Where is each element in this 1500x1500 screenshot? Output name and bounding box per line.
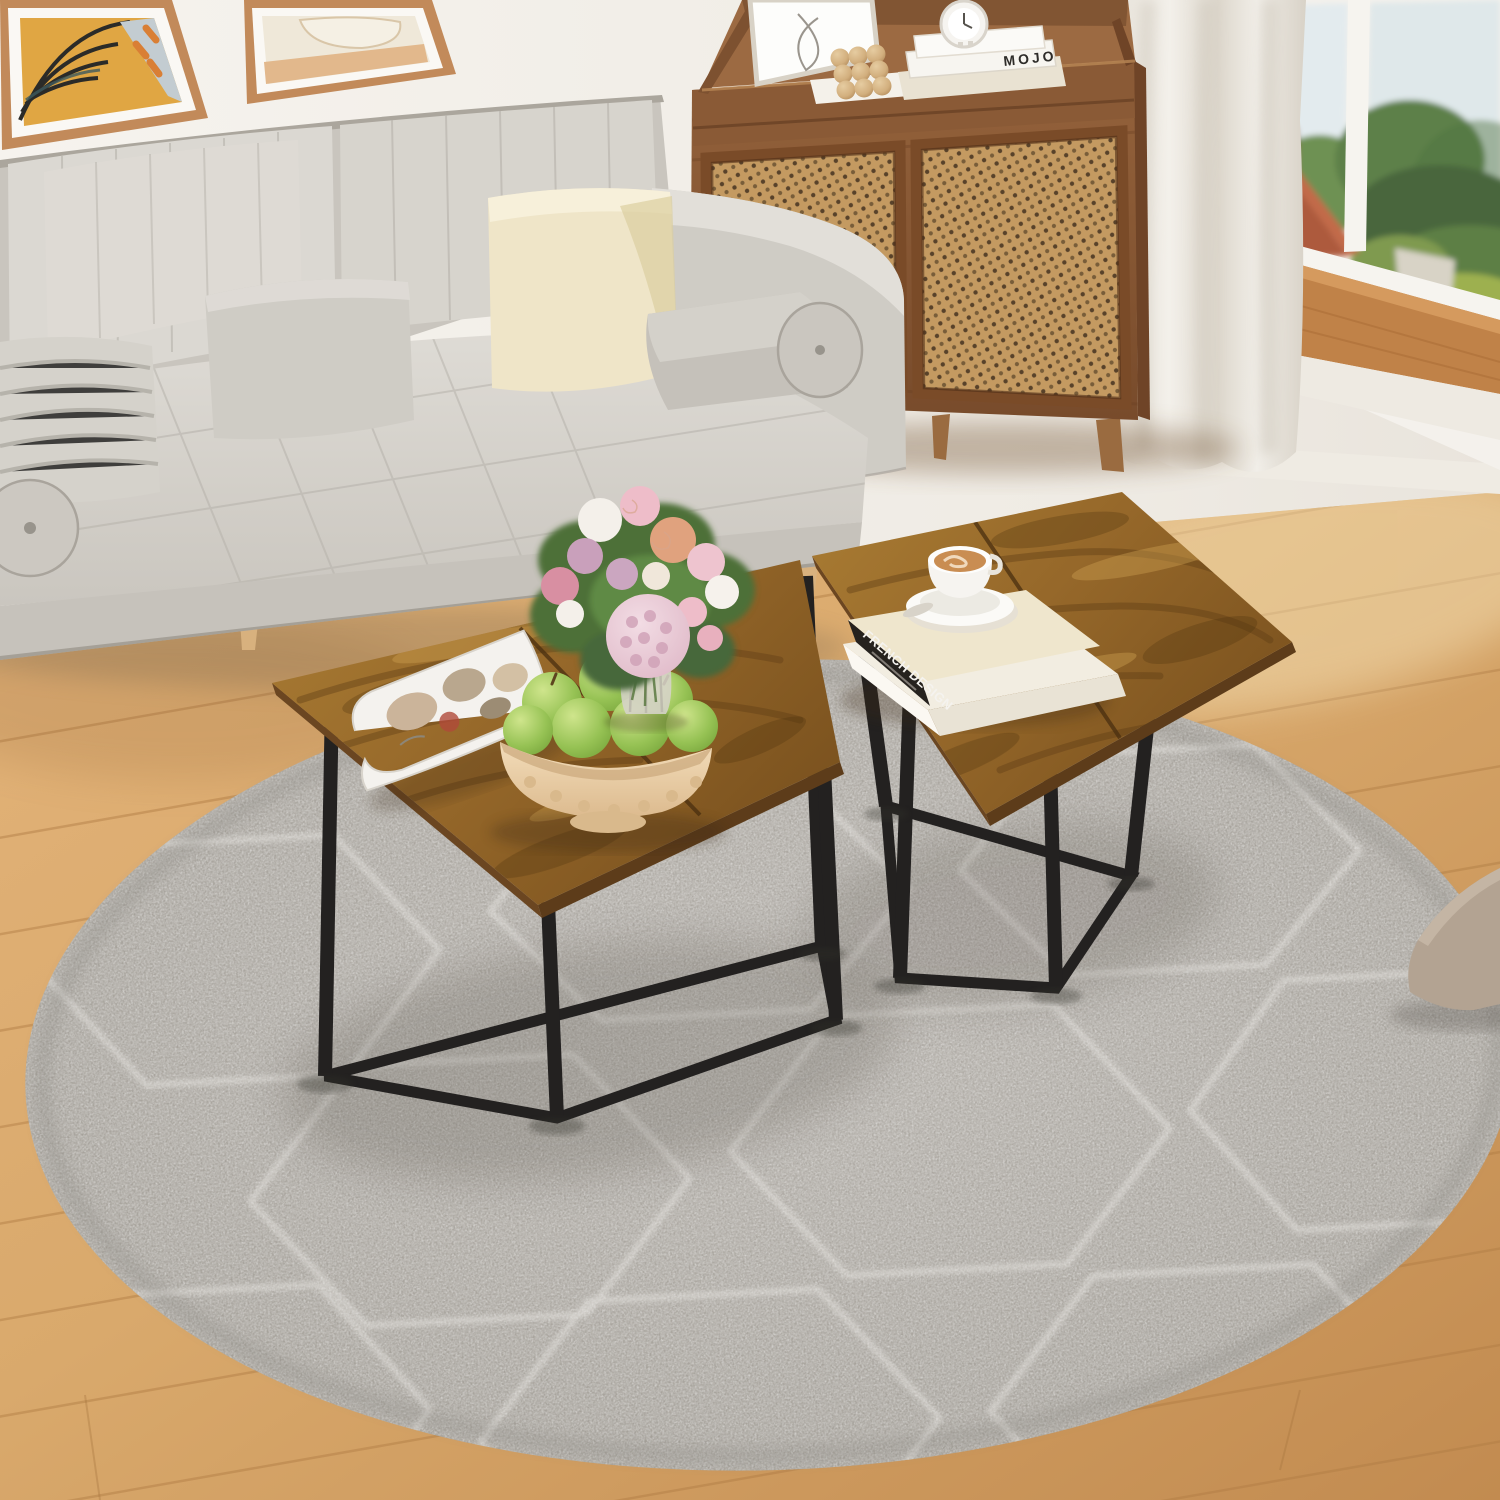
bowl-foot xyxy=(570,811,646,833)
bolster-right xyxy=(646,292,862,410)
living-room-photo: MOJO xyxy=(0,0,1500,1500)
rattan-door-right xyxy=(916,131,1126,404)
hydrangea xyxy=(606,594,690,678)
scene-canvas: MOJO xyxy=(0,0,1500,1500)
latte-coffee xyxy=(934,550,986,572)
round-clock xyxy=(941,1,987,48)
bead-cube-sculpture xyxy=(831,45,892,100)
